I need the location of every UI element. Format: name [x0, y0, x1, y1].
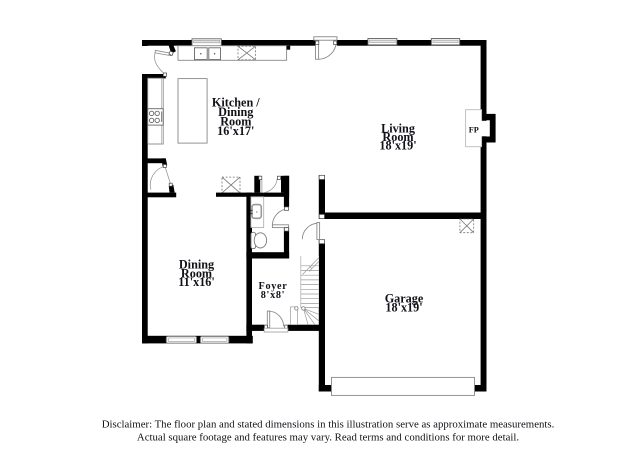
- svg-text:18'x19': 18'x19': [385, 301, 422, 315]
- svg-text:Actual square footage and feat: Actual square footage and features may v…: [137, 432, 519, 444]
- svg-text:FP: FP: [469, 126, 479, 135]
- svg-text:11'x16': 11'x16': [178, 275, 215, 289]
- svg-text:Disclaimer: The floor plan and: Disclaimer: The floor plan and stated di…: [102, 419, 555, 431]
- svg-text:18'x19': 18'x19': [379, 139, 416, 153]
- svg-text:8'x8': 8'x8': [261, 290, 285, 301]
- svg-text:16'x17': 16'x17': [217, 124, 254, 138]
